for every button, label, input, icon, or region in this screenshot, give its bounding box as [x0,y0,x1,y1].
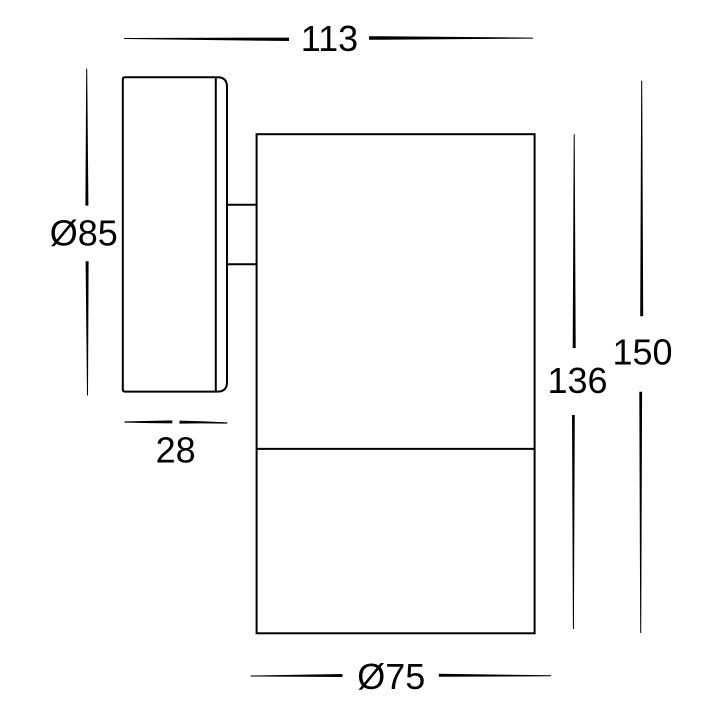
svg-text:Ø85: Ø85 [50,212,118,253]
svg-text:113: 113 [301,18,358,59]
svg-text:136: 136 [547,360,607,401]
svg-text:150: 150 [612,332,672,373]
svg-text:Ø75: Ø75 [357,656,425,697]
svg-text:28: 28 [156,430,196,471]
